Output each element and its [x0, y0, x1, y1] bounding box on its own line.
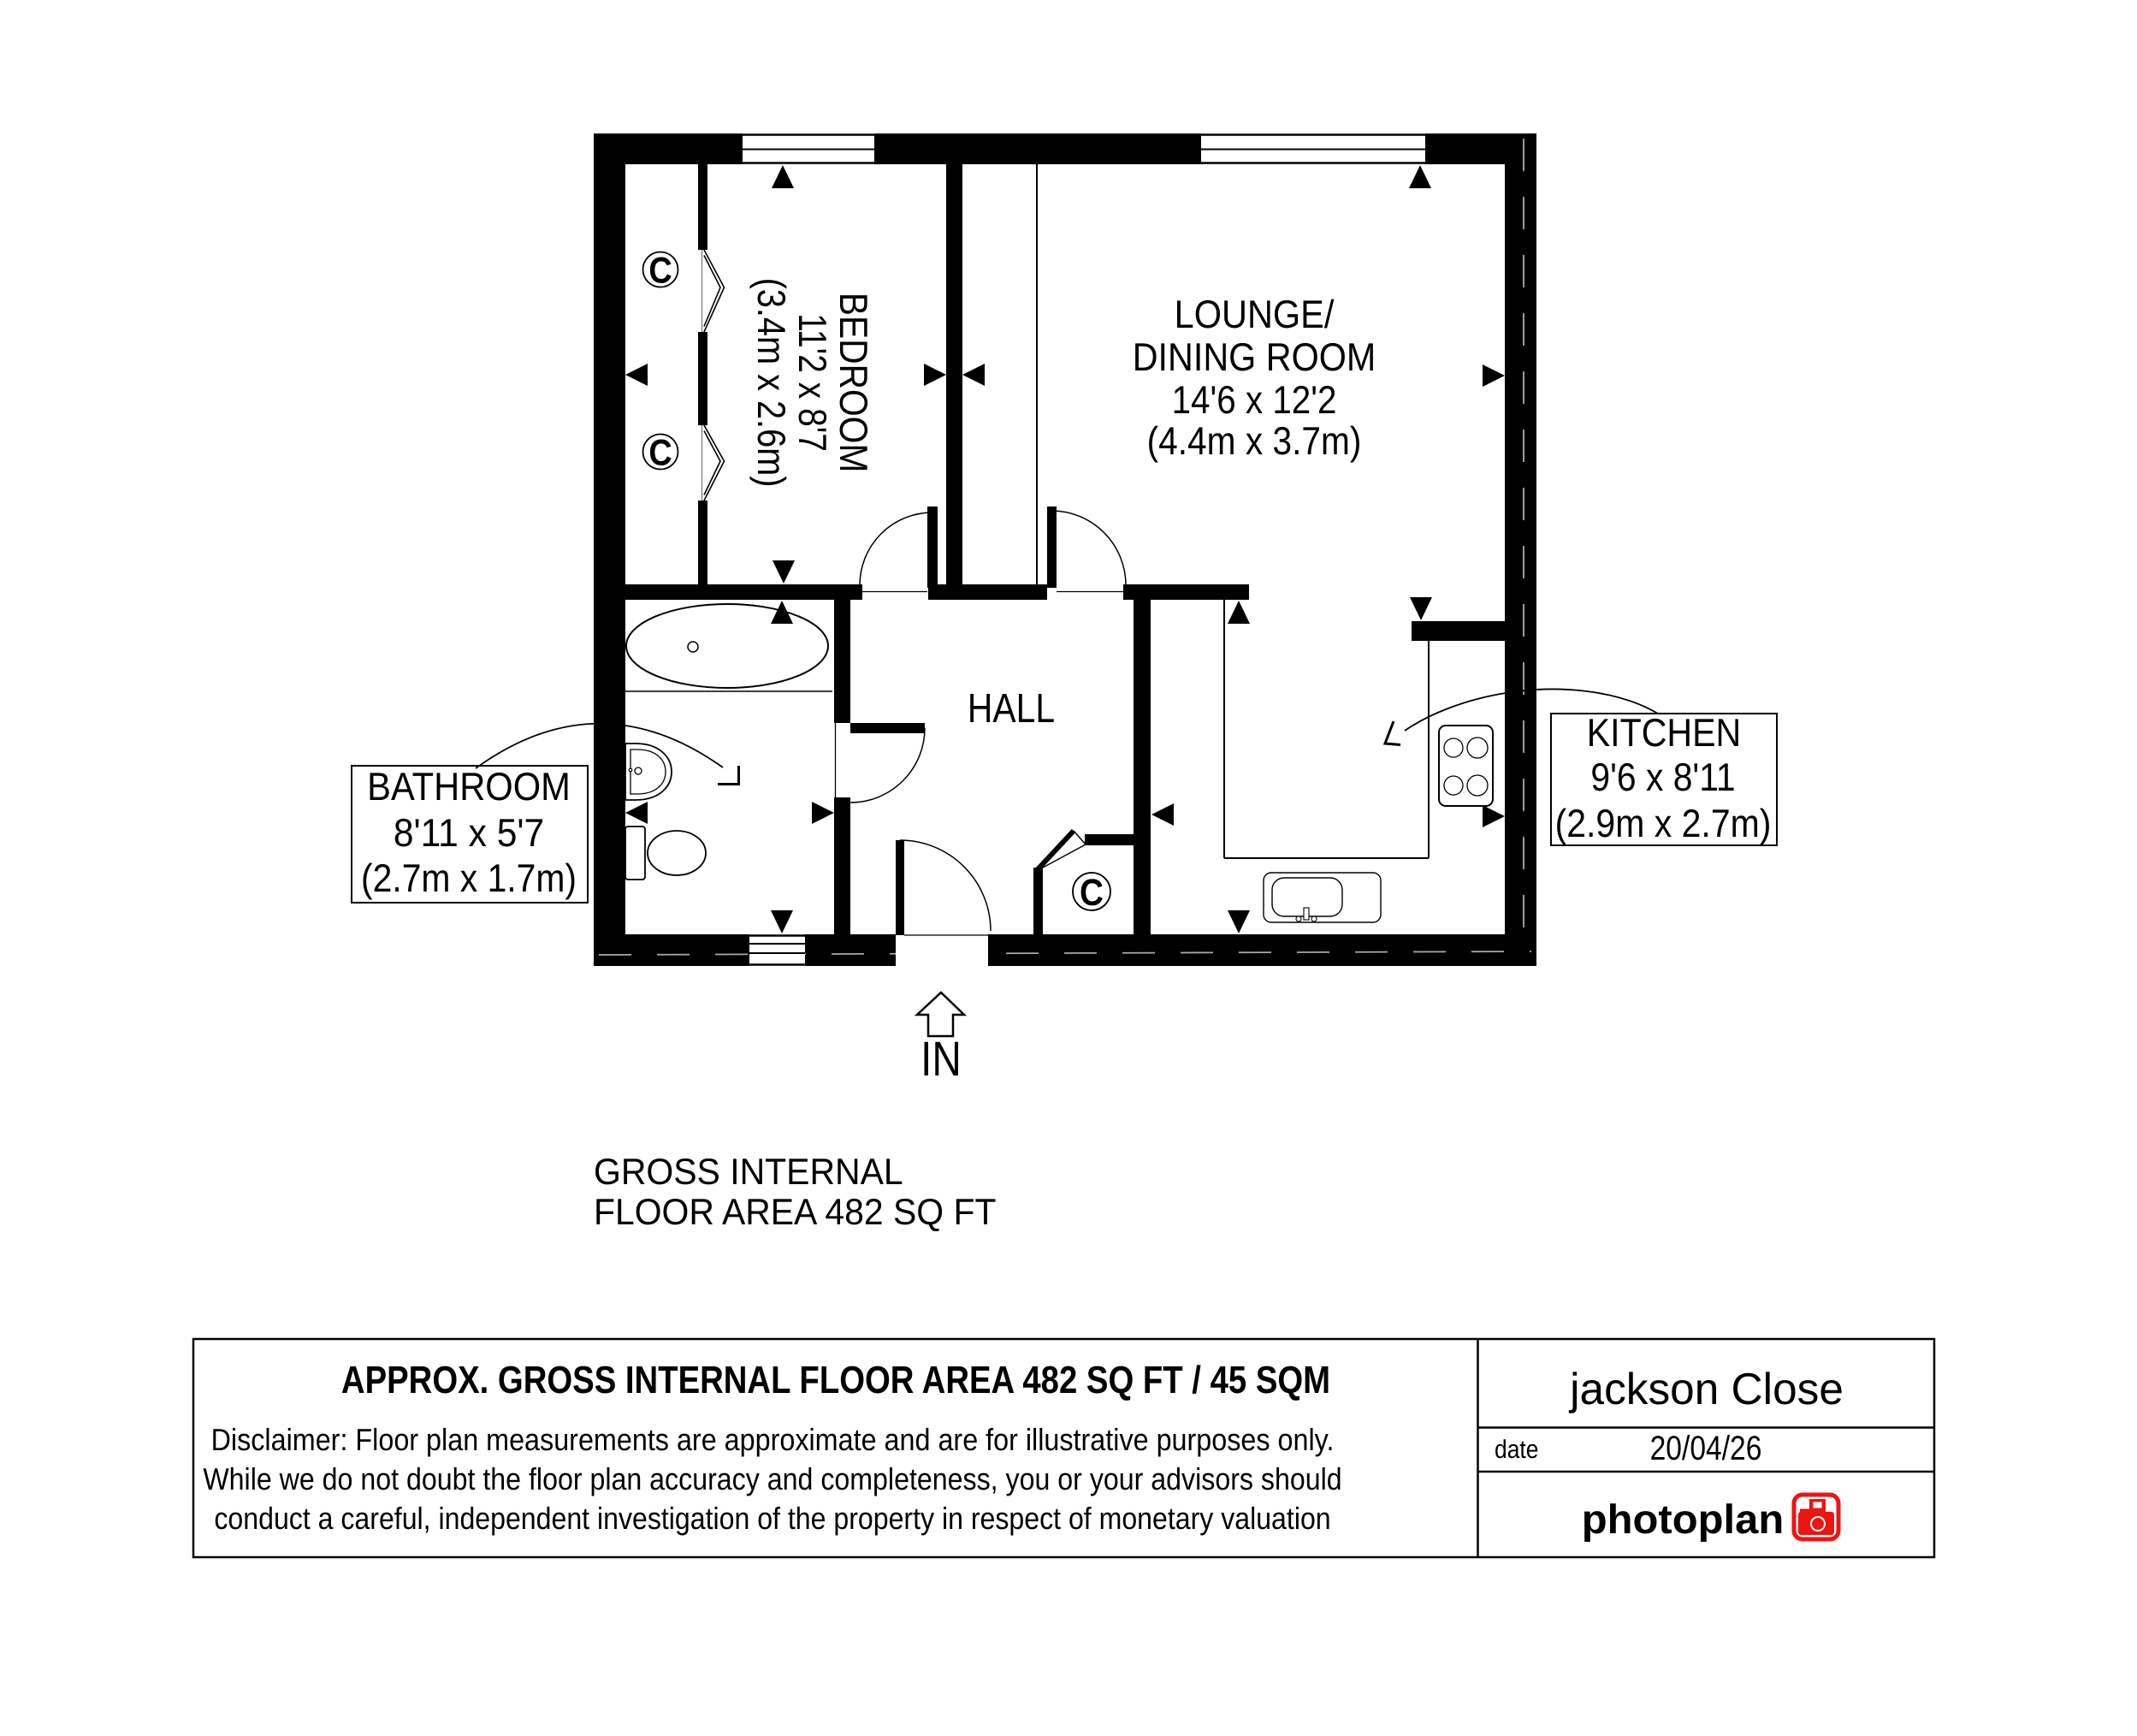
svg-text:HALL: HALL: [968, 686, 1055, 732]
svg-text:FLOOR AREA 482 SQ FT: FLOOR AREA 482 SQ FT: [594, 1192, 996, 1233]
svg-text:(2.9m x 2.7m): (2.9m x 2.7m): [1555, 801, 1772, 845]
svg-text:KITCHEN: KITCHEN: [1587, 710, 1742, 755]
svg-text:(2.7m x 1.7m): (2.7m x 1.7m): [361, 856, 577, 900]
svg-text:IN: IN: [921, 1032, 962, 1087]
svg-text:jackson Close: jackson Close: [1568, 1365, 1844, 1414]
svg-text:C: C: [648, 433, 672, 474]
svg-text:photoplan: photoplan: [1582, 1497, 1785, 1543]
svg-text:Disclaimer: Floor plan measure: Disclaimer: Floor plan measurements are …: [211, 1422, 1335, 1457]
svg-text:20/04/26: 20/04/26: [1650, 1430, 1762, 1467]
svg-text:conduct a careful, independent: conduct a careful, independent investiga…: [214, 1501, 1330, 1536]
svg-text:11'2 x 8'7: 11'2 x 8'7: [790, 313, 835, 452]
svg-text:While we do not doubt the floo: While we do not doubt the floor plan acc…: [203, 1461, 1341, 1496]
svg-text:LOUNGE/: LOUNGE/: [1175, 292, 1335, 336]
svg-text:C: C: [648, 251, 672, 292]
svg-text:(4.4m x 3.7m): (4.4m x 3.7m): [1147, 418, 1362, 463]
svg-text:GROSS INTERNAL: GROSS INTERNAL: [594, 1152, 903, 1193]
svg-text:BEDROOM: BEDROOM: [832, 293, 876, 473]
svg-text:DINING ROOM: DINING ROOM: [1133, 335, 1376, 379]
svg-text:8'11 x 5'7: 8'11 x 5'7: [394, 810, 544, 855]
svg-text:C: C: [1080, 872, 1104, 914]
svg-text:14'6 x 12'2: 14'6 x 12'2: [1172, 377, 1337, 422]
svg-text:(3.4m x 2.6m): (3.4m x 2.6m): [749, 278, 794, 488]
svg-text:date: date: [1495, 1436, 1539, 1464]
svg-text:APPROX. GROSS INTERNAL FLOOR A: APPROX. GROSS INTERNAL FLOOR AREA 482 SQ…: [341, 1358, 1330, 1401]
svg-text:BATHROOM: BATHROOM: [367, 764, 571, 809]
svg-text:9'6 x 8'11: 9'6 x 8'11: [1590, 755, 1735, 799]
